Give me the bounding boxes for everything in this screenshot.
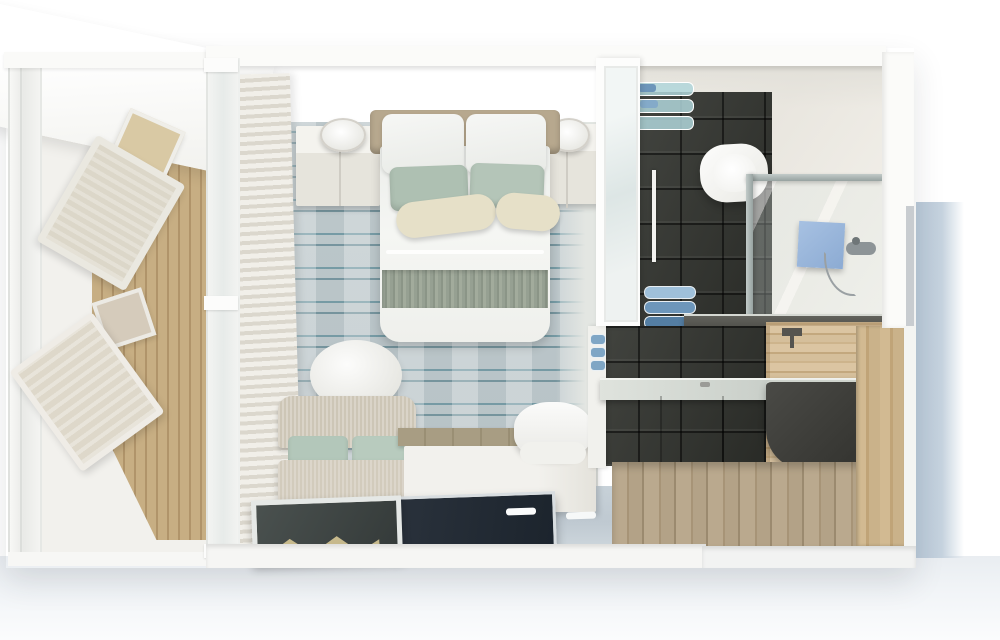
- dark-sink: [766, 380, 864, 470]
- towel: [644, 286, 696, 299]
- wall-bottom: [206, 544, 706, 568]
- balcony-fascia: [8, 552, 208, 566]
- shower-glass-frame-top: [746, 174, 882, 181]
- towel: [590, 347, 606, 358]
- wall-top-balcony: [4, 52, 212, 68]
- towel: [590, 360, 606, 371]
- desk-chair-base: [520, 442, 586, 464]
- balcony-glass-railing: [8, 60, 42, 558]
- bed-foot-runner: [382, 270, 548, 308]
- floor-light-strip: [506, 507, 536, 515]
- window-mullion: [204, 58, 238, 72]
- wall-sconce-left: [320, 118, 366, 152]
- wall-right-bottom: [904, 326, 916, 558]
- vanity-towel-stack: [590, 334, 604, 374]
- wall-bottom-bathroom: [702, 546, 916, 568]
- floorplan-render: [0, 0, 1000, 640]
- wall-faucet-stem: [790, 336, 794, 348]
- wall-top: [206, 46, 886, 66]
- towel: [590, 334, 606, 345]
- duvet-fold-line: [386, 250, 544, 254]
- teal-towel: [638, 84, 656, 92]
- exterior-ground-shadow: [0, 556, 1000, 640]
- sconce-cord-right: [566, 150, 568, 208]
- wood-frame-column: [856, 326, 904, 546]
- vanity-faucet: [700, 382, 710, 387]
- towel-rail: [652, 170, 656, 262]
- wall-faucet: [782, 328, 802, 336]
- window-mullion: [204, 296, 238, 310]
- exterior-sea-reflection: [916, 202, 964, 558]
- shower-knob: [852, 237, 860, 245]
- teal-towel: [640, 100, 658, 108]
- bathroom-glass-door: [604, 66, 638, 322]
- floor-light-strip: [566, 511, 596, 519]
- shower-glass-frame-side: [746, 174, 753, 326]
- sconce-cord-left: [339, 148, 341, 206]
- towel: [644, 301, 696, 314]
- railing-glass-line: [20, 60, 22, 558]
- cream-bolster-right: [495, 191, 562, 232]
